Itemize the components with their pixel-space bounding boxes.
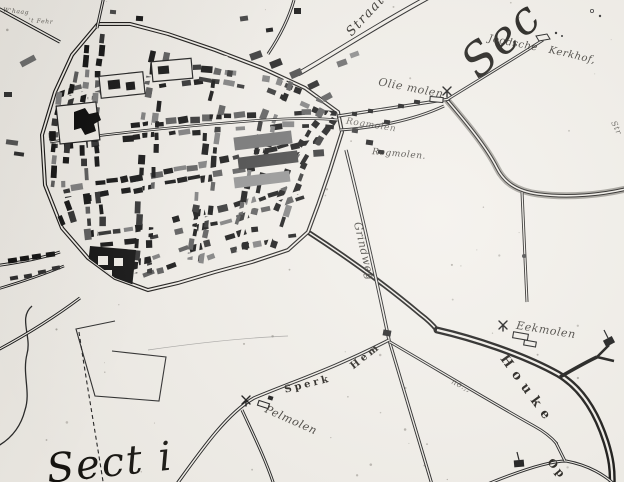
map-scan: SecSect iJoodscheKerkhof,Olie molenRogmo… [0, 0, 624, 482]
map-canvas [0, 0, 624, 482]
